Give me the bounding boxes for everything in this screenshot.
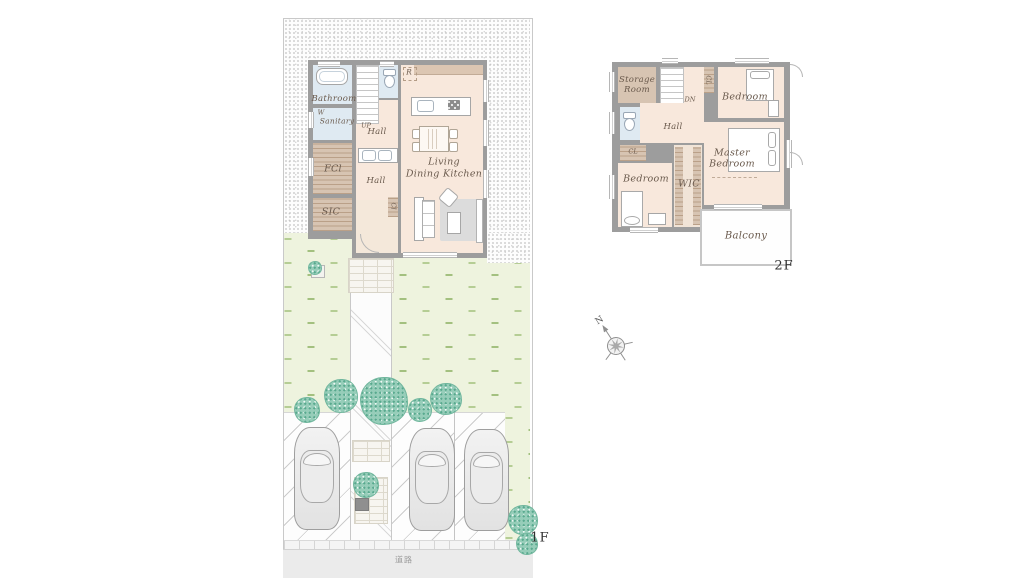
window xyxy=(735,58,769,64)
window xyxy=(483,120,489,146)
window xyxy=(380,61,394,67)
window xyxy=(609,72,615,92)
desk-icon xyxy=(768,100,779,117)
floor2-label: 2F xyxy=(774,259,793,274)
room-label-wic: WIC xyxy=(678,180,700,191)
room-label-washer: W xyxy=(318,109,325,116)
stove-icon xyxy=(448,100,460,110)
bathtub-icon xyxy=(316,68,348,85)
stairs-down-label: DN xyxy=(685,96,696,103)
room-label-closet-top: CL xyxy=(704,75,711,84)
room-label-hall-upper: Hall xyxy=(367,128,386,138)
walk-arrow xyxy=(712,177,757,178)
dining-chair xyxy=(449,129,458,139)
coffee-table xyxy=(447,212,461,234)
window xyxy=(609,175,615,199)
planter-box xyxy=(355,498,369,511)
room-label-storage-line2: Room xyxy=(624,86,650,96)
washbasin-icon xyxy=(378,150,392,161)
tree-icon xyxy=(294,397,320,423)
tree-icon xyxy=(353,472,379,498)
room-label-fcl: FCl xyxy=(324,165,342,176)
desk-icon xyxy=(648,213,666,225)
tree-icon xyxy=(308,261,322,275)
room-label-hall-lower: Hall xyxy=(366,177,385,187)
road-label: 道路 xyxy=(395,555,413,566)
casement-arc xyxy=(790,64,803,77)
car-icon xyxy=(409,428,455,531)
tree-icon xyxy=(430,383,462,415)
pillow-icon xyxy=(768,132,776,148)
pillow-icon xyxy=(624,216,640,225)
room-label-closet-left: CL xyxy=(628,148,637,155)
room-label-balcony: Balcony xyxy=(725,230,767,242)
room-label-entry-closet: Cl xyxy=(389,202,396,209)
window xyxy=(630,227,658,233)
window xyxy=(483,80,489,102)
tv-board xyxy=(476,199,483,243)
washbasin-icon xyxy=(362,150,376,161)
compass-rose: N xyxy=(586,310,646,372)
fridge-label: R xyxy=(406,69,412,78)
compass-north-label: N xyxy=(594,314,606,327)
casement-arc xyxy=(790,152,803,165)
window xyxy=(308,112,314,128)
window xyxy=(662,58,678,64)
kitchen-sink-icon xyxy=(417,100,434,112)
floor1-label: 1F xyxy=(530,531,549,546)
car-icon xyxy=(294,427,340,530)
room-label-bedroom-left: Bedroom xyxy=(623,175,669,186)
car-icon xyxy=(464,429,509,531)
window xyxy=(318,61,340,67)
room-label-ldk-line1: Living xyxy=(428,158,460,169)
room-label-sic: SIC xyxy=(322,208,340,219)
room-label-sanitary: Sanitary xyxy=(320,118,355,127)
window xyxy=(483,170,489,198)
pillow-icon xyxy=(768,150,776,166)
room-label-master-line2: Bedroom xyxy=(709,160,755,171)
room-label-hall-2f: Hall xyxy=(663,123,682,133)
dining-table xyxy=(419,126,449,152)
stairs-1f xyxy=(356,65,379,124)
floorplan-canvas: N Bathroom W Sanitary UP Hall FCl Hall S… xyxy=(0,0,1024,578)
tree-icon xyxy=(324,379,358,413)
tree-icon xyxy=(360,377,408,425)
entrance-porch xyxy=(348,258,394,293)
room-label-ldk-line2: Dining Kitchen xyxy=(406,170,482,181)
window xyxy=(403,252,457,258)
window xyxy=(714,204,762,210)
kitchen-counter xyxy=(414,65,483,75)
dining-chair xyxy=(449,142,458,152)
sofa-cushions xyxy=(422,200,435,238)
pillow-icon xyxy=(750,71,770,79)
window xyxy=(609,112,615,134)
room-label-bedroom-right: Bedroom xyxy=(722,93,768,104)
tree-icon xyxy=(408,398,432,422)
gravel-texture-right xyxy=(487,233,530,263)
planter-bricks xyxy=(352,440,390,462)
window xyxy=(308,158,314,176)
room-label-bathroom: Bathroom xyxy=(312,95,357,105)
